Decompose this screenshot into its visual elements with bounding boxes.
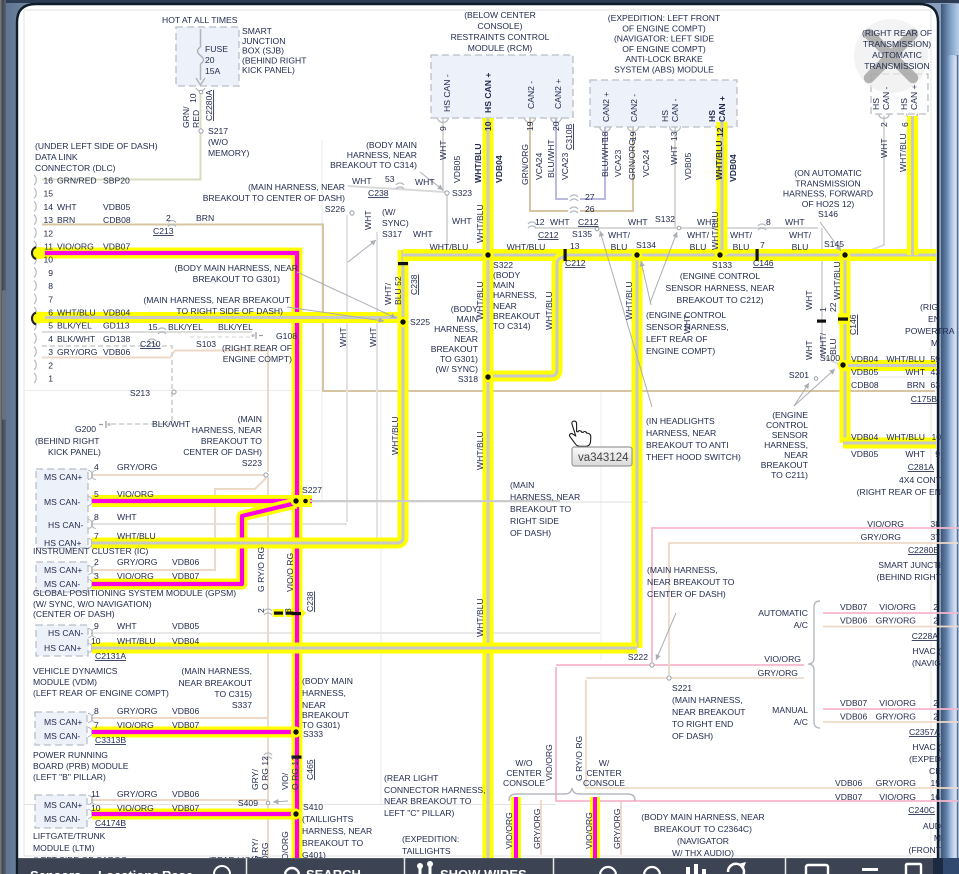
svg-text:26: 26 xyxy=(585,204,595,214)
svg-text:SMART: SMART xyxy=(242,26,273,36)
svg-text:CDB08: CDB08 xyxy=(103,215,131,225)
svg-text:22: 22 xyxy=(828,302,838,312)
svg-text:S223: S223 xyxy=(242,458,262,468)
svg-text:BREAKOUT: BREAKOUT xyxy=(302,710,350,720)
svg-text:WHT: WHT xyxy=(438,140,448,160)
svg-text:S100: S100 xyxy=(820,353,840,363)
svg-text:MS CAN-: MS CAN- xyxy=(44,497,80,507)
svg-text:7: 7 xyxy=(94,720,99,730)
svg-text:VDB04: VDB04 xyxy=(494,155,504,183)
svg-text:HS CAN+: HS CAN+ xyxy=(44,643,82,653)
svg-text:GRY/ORG: GRY/ORG xyxy=(117,706,158,716)
svg-text:VDB05: VDB05 xyxy=(683,153,693,180)
svg-text:HARNESS, NEAR: HARNESS, NEAR xyxy=(192,425,262,435)
svg-text:S323: S323 xyxy=(452,188,472,198)
svg-text:VIO/: VIO/ xyxy=(280,772,290,790)
svg-text:S213: S213 xyxy=(130,388,150,398)
svg-text:LIFTGATE/TRUNK: LIFTGATE/TRUNK xyxy=(33,831,106,841)
svg-text:WHT: WHT xyxy=(352,176,372,186)
svg-text:VEHICLE DYNAMICS: VEHICLE DYNAMICS xyxy=(33,666,118,676)
svg-text:WHT: WHT xyxy=(117,512,137,522)
svg-text:VIO/ORG: VIO/ORG xyxy=(867,519,904,529)
svg-text:VIO/ORG: VIO/ORG xyxy=(879,602,916,612)
svg-text:OF DASH): OF DASH) xyxy=(510,528,551,538)
svg-text:CAN -: CAN - xyxy=(670,98,680,122)
svg-text:10: 10 xyxy=(483,121,493,131)
svg-text:BREAKOUT TO: BREAKOUT TO xyxy=(201,436,262,446)
svg-text:WHT/: WHT/ xyxy=(687,230,710,240)
svg-text:CENTER: CENTER xyxy=(506,768,541,778)
svg-text:15: 15 xyxy=(148,322,158,332)
svg-text:BREAKOUT TO: BREAKOUT TO xyxy=(510,504,571,514)
svg-text:WHT: WHT xyxy=(669,145,679,165)
svg-text:W/: W/ xyxy=(599,758,610,768)
svg-text:(MAIN HARNESS,: (MAIN HARNESS, xyxy=(647,565,718,575)
svg-text:WHT: WHT xyxy=(804,290,814,310)
svg-text:(BODY MAIN HARNESS, NEAR: (BODY MAIN HARNESS, NEAR xyxy=(174,263,298,273)
svg-text:(BELOW CENTER: (BELOW CENTER xyxy=(464,10,536,20)
svg-text:HARNESS, NEAR: HARNESS, NEAR xyxy=(302,826,372,836)
svg-text:SYNC): SYNC) xyxy=(382,218,409,228)
svg-text:VCA23: VCA23 xyxy=(613,150,623,177)
svg-text:M: M xyxy=(934,833,941,843)
svg-text:CENTER OF DASH): CENTER OF DASH) xyxy=(183,447,262,457)
svg-text:MS CAN+: MS CAN+ xyxy=(44,565,82,575)
svg-text:C240C: C240C xyxy=(908,805,935,815)
svg-text:13: 13 xyxy=(669,131,679,141)
svg-text:16: 16 xyxy=(43,176,53,186)
svg-text:GRY/ORG: GRY/ORG xyxy=(758,668,799,678)
svg-text:C228A: C228A xyxy=(912,631,939,641)
svg-text:WHT/: WHT/ xyxy=(818,332,828,355)
svg-text:GRY/: GRY/ xyxy=(250,769,260,790)
svg-text:WHT: WHT xyxy=(57,202,77,212)
svg-text:S222: S222 xyxy=(628,652,648,662)
svg-text:WHT: WHT xyxy=(338,327,348,347)
svg-text:CE: CE xyxy=(929,766,941,776)
svg-text:WHT: WHT xyxy=(452,216,472,226)
svg-text:WHT: WHT xyxy=(117,621,137,631)
svg-text:2: 2 xyxy=(933,712,938,722)
svg-text:CENTER OF DASH): CENTER OF DASH) xyxy=(647,589,726,599)
svg-text:VDB07: VDB07 xyxy=(835,792,862,802)
svg-text:(NAVIGATOR: (NAVIGATOR xyxy=(677,836,729,846)
svg-text:AUTOMATIC: AUTOMATIC xyxy=(758,608,808,618)
svg-text:53: 53 xyxy=(385,174,395,184)
svg-text:GRY/ORG: GRY/ORG xyxy=(532,808,542,849)
svg-text:VDB06: VDB06 xyxy=(840,616,867,626)
svg-text:A/C: A/C xyxy=(794,717,808,727)
svg-text:GRY/ORG: GRY/ORG xyxy=(117,462,158,472)
svg-text:S135: S135 xyxy=(572,229,592,239)
svg-text:C2280B: C2280B xyxy=(908,545,939,555)
svg-text:3: 3 xyxy=(48,347,53,357)
svg-text:W/ THX AUDIO): W/ THX AUDIO) xyxy=(672,848,734,858)
svg-text:(LEFT "B" PILLAR): (LEFT "B" PILLAR) xyxy=(33,772,106,782)
svg-text:A/C: A/C xyxy=(794,620,808,630)
svg-text:(BEHIND RIGHT: (BEHIND RIGHT xyxy=(35,436,100,446)
svg-text:WHT: WHT xyxy=(905,367,925,377)
svg-text:(RIGHT REAR OF: (RIGHT REAR OF xyxy=(222,343,292,353)
svg-text:TO C314): TO C314) xyxy=(493,321,531,331)
svg-text:9: 9 xyxy=(94,621,99,631)
svg-text:BREAKOUT: BREAKOUT xyxy=(761,460,809,470)
svg-text:C146: C146 xyxy=(753,258,774,268)
svg-text:VDB07: VDB07 xyxy=(840,698,867,708)
svg-text:GRN/: GRN/ xyxy=(181,106,191,128)
svg-text:HARNESS,: HARNESS, xyxy=(493,290,537,300)
svg-text:2: 2 xyxy=(256,608,266,613)
svg-text:NEAR BREAKOUT TO: NEAR BREAKOUT TO xyxy=(647,577,735,587)
svg-text:(W/ SYNC): (W/ SYNC) xyxy=(436,364,479,374)
svg-text:HARNESS, NEAR: HARNESS, NEAR xyxy=(510,492,580,502)
svg-text:S225: S225 xyxy=(410,317,430,327)
svg-text:GRY/ORG: GRY/ORG xyxy=(612,808,622,849)
svg-text:WHT: WHT xyxy=(785,217,805,227)
svg-text:VCA23: VCA23 xyxy=(560,153,570,180)
svg-text:VDB06: VDB06 xyxy=(835,778,862,788)
svg-text:HARNESS, NEAR: HARNESS, NEAR xyxy=(646,428,716,438)
svg-text:G200: G200 xyxy=(75,424,96,434)
svg-text:WHT/BLU: WHT/BLU xyxy=(475,204,485,243)
svg-text:KICK PANEL): KICK PANEL) xyxy=(48,447,101,457)
svg-text:VDB05: VDB05 xyxy=(172,621,199,631)
svg-text:C238: C238 xyxy=(305,591,315,612)
svg-text:HOT AT ALL TIMES: HOT AT ALL TIMES xyxy=(162,15,238,25)
svg-text:VIO/ORG: VIO/ORG xyxy=(879,792,916,802)
svg-text:CONNECTOR (DLC): CONNECTOR (DLC) xyxy=(35,163,116,173)
svg-text:S318: S318 xyxy=(458,374,478,384)
svg-text:VIO/ORG: VIO/ORG xyxy=(57,242,94,252)
svg-text:GRY/ORG: GRY/ORG xyxy=(117,557,158,567)
svg-text:FUSE: FUSE xyxy=(205,44,228,54)
svg-text:BLU 52: BLU 52 xyxy=(393,276,403,305)
svg-text:10: 10 xyxy=(931,432,941,442)
svg-text:INSTRUMENT CLUSTER (IC): INSTRUMENT CLUSTER (IC) xyxy=(33,546,149,556)
svg-text:NEAR: NEAR xyxy=(493,301,517,311)
svg-text:(MAIN: (MAIN xyxy=(238,414,262,424)
svg-text:HS: HS xyxy=(871,98,881,110)
svg-text:POWERTRA: POWERTRA xyxy=(905,326,955,336)
svg-text:BLK/YEL: BLK/YEL xyxy=(218,322,253,332)
svg-text:SENSOR: SENSOR xyxy=(772,430,808,440)
svg-text:BLU: BLU xyxy=(611,242,628,252)
svg-text:8: 8 xyxy=(48,281,53,291)
svg-text:C210: C210 xyxy=(140,339,161,349)
svg-text:10: 10 xyxy=(43,255,53,265)
svg-text:GLOBAL POSITIONING SYSTEM MODU: GLOBAL POSITIONING SYSTEM MODULE (GPSM) xyxy=(33,588,236,598)
svg-text:S409: S409 xyxy=(238,798,258,808)
svg-text:11: 11 xyxy=(44,242,53,252)
svg-text:(MAIN HARNESS, NEAR: (MAIN HARNESS, NEAR xyxy=(248,182,345,192)
svg-text:(ENGINE: (ENGINE xyxy=(772,410,808,420)
svg-text:(NAVIGATOR: LEFT SIDE: (NAVIGATOR: LEFT SIDE xyxy=(614,34,714,44)
svg-text:GRY/ORG: GRY/ORG xyxy=(876,778,917,788)
svg-text:VIO/ORG: VIO/ORG xyxy=(504,812,514,849)
svg-text:BLK/WHT: BLK/WHT xyxy=(152,419,191,429)
svg-text:S333: S333 xyxy=(303,729,323,739)
svg-text:RED: RED xyxy=(191,110,201,128)
svg-text:S227: S227 xyxy=(302,485,322,495)
svg-text:RESTRAINTS CONTROL: RESTRAINTS CONTROL xyxy=(451,32,550,42)
svg-text:TO RIGHT END: TO RIGHT END xyxy=(672,719,733,729)
svg-text:CAN -: CAN - xyxy=(881,86,891,110)
svg-text:2: 2 xyxy=(166,213,171,223)
svg-text:GD138: GD138 xyxy=(103,334,130,344)
svg-text:WHT: WHT xyxy=(368,327,378,347)
svg-text:5: 5 xyxy=(94,489,99,499)
svg-text:WHT: WHT xyxy=(415,177,435,187)
svg-text:JUNCTION: JUNCTION xyxy=(242,36,285,46)
svg-text:(BODY MAIN: (BODY MAIN xyxy=(366,140,417,150)
svg-text:HS CAN -: HS CAN - xyxy=(442,74,452,112)
svg-text:6: 6 xyxy=(48,308,53,318)
svg-text:15: 15 xyxy=(43,189,53,199)
svg-text:C212: C212 xyxy=(538,230,559,240)
svg-text:G108: G108 xyxy=(276,331,297,341)
svg-text:WHT/BLU: WHT/BLU xyxy=(886,354,925,364)
svg-text:TO C211): TO C211) xyxy=(771,470,808,480)
svg-text:VIO/ORG: VIO/ORG xyxy=(117,803,154,813)
svg-text:TAILLIGHTS: TAILLIGHTS xyxy=(402,846,451,856)
svg-text:VDB07: VDB07 xyxy=(172,571,199,581)
svg-text:O RG 12: O RG 12 xyxy=(260,756,270,790)
svg-text:(BODY: (BODY xyxy=(493,270,520,280)
svg-text:3: 3 xyxy=(283,608,293,613)
svg-text:EN: EN xyxy=(928,314,940,324)
svg-text:POWER RUNNING: POWER RUNNING xyxy=(33,750,108,760)
svg-text:2: 2 xyxy=(94,557,99,567)
svg-text:GRN/RED: GRN/RED xyxy=(57,176,97,186)
svg-text:S145: S145 xyxy=(824,239,844,249)
svg-text:WHT: WHT xyxy=(804,340,814,360)
svg-text:VDB05: VDB05 xyxy=(452,156,462,183)
svg-text:va343124: va343124 xyxy=(578,452,629,464)
svg-text:ENGINE COMPT): ENGINE COMPT) xyxy=(646,346,715,356)
svg-text:VCA24: VCA24 xyxy=(641,150,651,177)
svg-text:(UNDER LEFT SIDE OF DASH): (UNDER LEFT SIDE OF DASH) xyxy=(35,141,158,151)
svg-text:KICK PANEL): KICK PANEL) xyxy=(242,65,295,75)
svg-text:SENSOR HARNESS, NEAR: SENSOR HARNESS, NEAR xyxy=(666,283,775,293)
svg-text:BRN: BRN xyxy=(196,213,214,223)
svg-text:(MAIN HARNESS,: (MAIN HARNESS, xyxy=(672,695,743,705)
svg-text:VIO/ORG: VIO/ORG xyxy=(117,571,154,581)
svg-text:C238: C238 xyxy=(409,274,419,295)
svg-text:LEFT "C" PILLAR): LEFT "C" PILLAR) xyxy=(384,808,455,818)
svg-text:WHT/BLU: WHT/BLU xyxy=(544,291,554,330)
svg-text:LEFT REAR OF: LEFT REAR OF xyxy=(646,334,707,344)
svg-text:C175B: C175B xyxy=(911,394,938,404)
svg-text:(ON AUTOMATIC: (ON AUTOMATIC xyxy=(794,168,861,178)
svg-text:MODULE (VDM): MODULE (VDM) xyxy=(33,677,97,687)
svg-text:4X4 CONT: 4X4 CONT xyxy=(899,475,942,485)
svg-text:S322: S322 xyxy=(493,260,513,270)
svg-text:OF DASH): OF DASH) xyxy=(672,731,713,741)
svg-text:VIO/ORG: VIO/ORG xyxy=(117,489,154,499)
svg-text:C4174B: C4174B xyxy=(95,818,126,828)
svg-text:8: 8 xyxy=(94,512,99,522)
svg-text:BLK/WHT: BLK/WHT xyxy=(57,334,96,344)
svg-text:WHT/BLU: WHT/BLU xyxy=(475,281,485,320)
svg-text:MEMORY): MEMORY) xyxy=(208,148,250,158)
svg-text:7: 7 xyxy=(760,240,765,250)
svg-text:WHT: WHT xyxy=(413,229,433,239)
svg-text:(BEHIND RIGHT: (BEHIND RIGHT xyxy=(242,55,307,65)
svg-text:5: 5 xyxy=(48,321,53,331)
svg-text:NEAR BREAKOUT: NEAR BREAKOUT xyxy=(672,707,746,717)
svg-text:SYSTEM (ABS) MODULE: SYSTEM (ABS) MODULE xyxy=(614,65,714,75)
svg-text:(IN HEADLIGHTS: (IN HEADLIGHTS xyxy=(646,416,715,426)
svg-text:1: 1 xyxy=(48,374,53,384)
svg-text:C146: C146 xyxy=(848,314,858,335)
svg-text:BREAKOUT TO C2364C): BREAKOUT TO C2364C) xyxy=(654,824,752,834)
svg-text:10: 10 xyxy=(91,636,101,646)
svg-text:10: 10 xyxy=(91,803,101,813)
svg-text:11: 11 xyxy=(91,789,100,799)
svg-text:VDB04: VDB04 xyxy=(728,154,738,182)
svg-text:(BEHIND RIGHT: (BEHIND RIGHT xyxy=(877,572,942,582)
svg-text:C281A: C281A xyxy=(908,462,935,472)
svg-text:6: 6 xyxy=(900,122,910,127)
svg-text:GRY/ORG: GRY/ORG xyxy=(57,347,98,357)
svg-text:VCA24: VCA24 xyxy=(534,153,544,180)
svg-text:TRANSMISSION: TRANSMISSION xyxy=(795,178,860,188)
svg-text:WHT/BLU: WHT/BLU xyxy=(57,308,96,318)
svg-text:GRY/ORG: GRY/ORG xyxy=(876,616,917,626)
svg-text:(FRONT: (FRONT xyxy=(909,845,942,855)
svg-text:VIO/ORG: VIO/ORG xyxy=(764,654,801,664)
svg-text:16: 16 xyxy=(930,792,940,802)
svg-text:CAN +: CAN + xyxy=(717,96,727,122)
svg-text:2: 2 xyxy=(933,616,938,626)
svg-text:C238: C238 xyxy=(368,188,389,198)
svg-text:(BODY MAIN: (BODY MAIN xyxy=(302,676,353,686)
svg-text:2: 2 xyxy=(933,602,938,612)
svg-text:(RIGHT REAR OF EN: (RIGHT REAR OF EN xyxy=(857,487,941,497)
svg-text:DATA LINK: DATA LINK xyxy=(35,152,78,162)
svg-text:(MAIN HARNESS, NEAR BREAKOUT: (MAIN HARNESS, NEAR BREAKOUT xyxy=(143,295,290,305)
svg-text:9: 9 xyxy=(935,449,940,459)
svg-text:VDB04: VDB04 xyxy=(103,308,130,318)
svg-text:HARNESS, FORWARD: HARNESS, FORWARD xyxy=(783,189,873,199)
svg-text:MODULE (RCM): MODULE (RCM) xyxy=(468,43,533,53)
svg-text:S337: S337 xyxy=(232,700,252,710)
svg-text:(RIGHT REAR OF: (RIGHT REAR OF xyxy=(862,28,932,38)
svg-text:BLU/WHT: BLU/WHT xyxy=(600,138,610,177)
svg-text:VDB06: VDB06 xyxy=(840,712,867,722)
svg-text:CAN2 +: CAN2 + xyxy=(553,79,563,109)
svg-text:W/O: W/O xyxy=(515,758,532,768)
svg-text:S217: S217 xyxy=(208,126,228,136)
svg-text:NEAR BREAKOUT TO: NEAR BREAKOUT TO xyxy=(384,796,472,806)
svg-text:BREAKOUT TO CENTER OF DASH): BREAKOUT TO CENTER OF DASH) xyxy=(203,193,345,203)
svg-text:(W/O: (W/O xyxy=(208,137,228,147)
svg-text:VDB07: VDB07 xyxy=(172,720,199,730)
svg-text:MS CAN+: MS CAN+ xyxy=(44,800,82,810)
svg-text:4: 4 xyxy=(48,334,53,344)
svg-text:4: 4 xyxy=(94,462,99,472)
svg-text:BREAKOUT TO: BREAKOUT TO xyxy=(302,838,363,848)
svg-text:Rese: Rese xyxy=(162,868,193,874)
svg-text:CONSOLE: CONSOLE xyxy=(503,778,545,788)
svg-text:(REAR LIGHT: (REAR LIGHT xyxy=(384,773,439,783)
svg-text:C2357A: C2357A xyxy=(909,727,940,737)
svg-text:8: 8 xyxy=(766,217,771,227)
svg-text:BREAKOUT TO ANTI: BREAKOUT TO ANTI xyxy=(646,440,729,450)
svg-text:TO RIGHT SIDE OF DASH): TO RIGHT SIDE OF DASH) xyxy=(176,306,283,316)
svg-text:WHT/BLU: WHT/BLU xyxy=(430,242,469,252)
svg-text:G RY/O RG: G RY/O RG xyxy=(256,546,266,592)
svg-text:HARNESS,: HARNESS, xyxy=(764,440,808,450)
svg-text:2: 2 xyxy=(48,360,53,370)
svg-text:19: 19 xyxy=(525,121,535,131)
svg-text:14: 14 xyxy=(43,202,53,212)
svg-text:VDB05: VDB05 xyxy=(851,367,878,377)
svg-text:WHT/BLU: WHT/BLU xyxy=(473,143,483,183)
svg-text:WHT/BLU: WHT/BLU xyxy=(710,211,720,250)
svg-text:BOARD (PRB) MODULE: BOARD (PRB) MODULE xyxy=(33,761,129,771)
svg-text:CDB08: CDB08 xyxy=(851,380,879,390)
svg-text:G RY/O RG: G RY/O RG xyxy=(574,735,584,781)
svg-text:(LEFT REAR OF ENGINE COMPT): (LEFT REAR OF ENGINE COMPT) xyxy=(33,688,169,698)
svg-text:WHT/BLU: WHT/BLU xyxy=(832,261,842,300)
svg-text:BREAKOUT TO C212): BREAKOUT TO C212) xyxy=(677,295,764,305)
svg-text:(MAIN HARNESS,: (MAIN HARNESS, xyxy=(181,666,252,676)
svg-text:BREAKOUT TO G301): BREAKOUT TO G301) xyxy=(193,274,281,284)
svg-text:WHT/: WHT/ xyxy=(383,282,393,305)
svg-text:WHT/BLU: WHT/BLU xyxy=(117,531,156,541)
svg-text:S201: S201 xyxy=(789,370,809,380)
svg-text:WHT: WHT xyxy=(363,210,373,230)
svg-text:12: 12 xyxy=(715,127,725,137)
svg-text:(W/: (W/ xyxy=(382,207,396,217)
svg-text:20: 20 xyxy=(551,121,561,131)
svg-text:HS CAN-: HS CAN- xyxy=(48,628,83,638)
svg-text:MS CAN-: MS CAN- xyxy=(44,814,80,824)
svg-text:HARNESS,: HARNESS, xyxy=(302,688,346,698)
svg-text:HVAC (: HVAC ( xyxy=(913,646,942,656)
svg-text:(EXPEDITION:: (EXPEDITION: xyxy=(402,834,459,844)
svg-text:SHOW WIRES: SHOW WIRES xyxy=(440,867,527,874)
svg-text:(CENTER OF DASH): (CENTER OF DASH) xyxy=(33,609,115,619)
svg-text:VIO/O RG: VIO/O RG xyxy=(285,553,295,592)
svg-text:MS CAN+: MS CAN+ xyxy=(44,472,82,482)
svg-text:HARNESS, NEAR: HARNESS, NEAR xyxy=(347,150,417,160)
svg-text:BLU/WHT: BLU/WHT xyxy=(546,139,556,178)
svg-text:VDB04: VDB04 xyxy=(851,354,878,364)
svg-text:WHT/: WHT/ xyxy=(789,230,812,240)
svg-text:CONSOLE): CONSOLE) xyxy=(478,21,523,31)
svg-text:S226: S226 xyxy=(325,204,345,214)
svg-text:BLU: BLU xyxy=(733,242,750,252)
svg-text:WHT/BLU: WHT/BLU xyxy=(117,636,156,646)
svg-text:3: 3 xyxy=(94,571,99,581)
svg-text:HS CAN +: HS CAN + xyxy=(483,73,493,113)
svg-text:HS: HS xyxy=(899,98,909,110)
svg-text:38: 38 xyxy=(930,519,940,529)
svg-text:NEAR: NEAR xyxy=(302,700,326,710)
svg-text:GRN/ORG: GRN/ORG xyxy=(627,139,637,180)
svg-text:WHT/BLU: WHT/BLU xyxy=(886,432,925,442)
svg-text:WHT/BLU: WHT/BLU xyxy=(475,431,485,470)
svg-text:VDB07: VDB07 xyxy=(103,242,130,252)
svg-text:HS CAN-: HS CAN- xyxy=(48,520,83,530)
svg-text:C212: C212 xyxy=(578,217,599,227)
svg-text:WHT: WHT xyxy=(905,449,925,459)
svg-text:Locations: Locations xyxy=(98,868,159,874)
svg-text:VDB05: VDB05 xyxy=(103,202,130,212)
svg-text:CAN2 -: CAN2 - xyxy=(526,81,536,109)
